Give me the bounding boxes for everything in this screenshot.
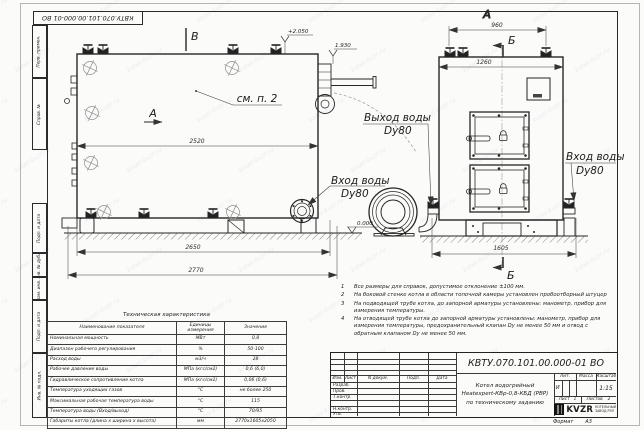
inlet-right-text: Вход воды: [566, 151, 625, 163]
padlock-icon: [500, 135, 508, 141]
elevation-2050: +2.050: [281, 29, 313, 54]
valve-icon: [428, 199, 438, 208]
dim-2520-text: 2520: [189, 138, 204, 145]
outlet-text: Выход воды: [364, 112, 431, 124]
elev-1930-text: 1.930: [335, 43, 351, 49]
tb-scale-value: 1:15: [596, 380, 616, 396]
section-b-bottom-marker: Б: [493, 257, 515, 282]
side-view-body: [77, 54, 318, 218]
table-row: Номинальная мощностьМВт0,8: [48, 335, 287, 345]
table-row: Рабочее давление водыМПа (кгс/см2)0,6 (6…: [48, 366, 287, 376]
dim-960-text: 960: [491, 22, 503, 29]
valve-icon: [541, 48, 551, 57]
title-block: Изм. Лист N докум. Подп. Дата Разраб. Пр…: [330, 352, 618, 418]
valve-icon: [86, 209, 96, 218]
section-b-bottom-text: Б: [507, 269, 515, 282]
lower-door: [467, 165, 530, 212]
valve-icon: [98, 45, 108, 54]
section-b-top-text: Б: [508, 34, 516, 47]
target-mark-icon: [221, 57, 244, 80]
tb-doc-number: КВТУ.070.101.00.000-01 ВО: [456, 353, 616, 373]
kvzr-logo-icon: [554, 404, 564, 415]
padlock-icon: [500, 188, 508, 194]
left-connection: [419, 208, 439, 232]
elevation-1930: 1.930: [329, 43, 357, 64]
tb-lit-value: И: [554, 380, 562, 396]
tech-col-value: Значение: [225, 322, 287, 335]
table-row: Расход водым3/ч28: [48, 355, 287, 365]
note-item: 1Все размеры для справок, допустимое отк…: [341, 284, 617, 291]
kvzr-logo-subtitle: КОТЕЛЬНЫЙ ЗАВОД РЭП: [595, 406, 616, 413]
side-view: 2520 2650 2770 +2.050: [62, 28, 416, 279]
upper-door: [467, 112, 530, 159]
valve-icon: [83, 45, 93, 54]
company-logo: KVZR КОТЕЛЬНЫЙ ЗАВОД РЭП: [554, 403, 616, 416]
view-a-text: А: [148, 107, 157, 120]
view-a-marker: А: [144, 107, 162, 122]
tb-scale-label: Масштаб: [596, 373, 616, 380]
elev-zero-text: 0.000: [357, 221, 373, 227]
valve-icon: [271, 45, 281, 54]
dimension-1260: 1260: [439, 59, 563, 67]
water-inlet-right-label: Вход воды Dy80: [565, 151, 625, 201]
dim-1605-text: 1605: [493, 245, 508, 252]
padlock-icon: [501, 131, 507, 135]
side-view-flue: [316, 64, 417, 152]
front-view: 1260 960 1605 А Б: [347, 8, 625, 282]
ground-left: [64, 233, 362, 240]
valve-icon: [458, 48, 468, 57]
side-view-left-fittings: [62, 76, 77, 228]
side-view-supports: [80, 218, 316, 233]
see-item-text: см. п. 2: [237, 93, 278, 105]
tech-table: Наименование показателя Единицы измерени…: [47, 321, 287, 429]
notes-list: 1Все размеры для справок, допустимое отк…: [341, 284, 617, 339]
table-row: Температура воды (Вход/выход)°С70/95: [48, 407, 287, 417]
target-mark-icon: [80, 152, 103, 175]
valve-icon: [445, 48, 455, 57]
valve-icon: [208, 209, 218, 218]
water-outlet-label: Выход воды Dy80: [363, 112, 431, 205]
table-row: Диапазон рабочего регулирования%50-100: [48, 345, 287, 355]
ground-right: [420, 236, 588, 243]
tech-col-name: Наименование показателя: [48, 322, 177, 335]
section-v-marker: В: [186, 28, 199, 51]
note-item: 3На подводящей трубе котла, до запорной …: [341, 301, 617, 316]
inlet-right-dn-text: Dy80: [576, 165, 604, 177]
right-connection: [563, 208, 575, 236]
dim-2650-text: 2650: [185, 244, 200, 251]
elev-2050-text: +2.050: [288, 29, 309, 35]
flue-fan: [369, 188, 417, 236]
control-panel: [527, 78, 550, 100]
table-row: Температура уходящих газов°Сне более 250: [48, 386, 287, 396]
front-view-base: [466, 220, 557, 236]
front-view-body: [439, 57, 563, 220]
see-item-note: см. п. 2: [195, 90, 282, 105]
tb-podp: Подп.: [399, 375, 428, 382]
tech-table-title: Техническая характеристика: [47, 312, 286, 318]
tb-sheets: Листов2: [581, 396, 616, 403]
kvzr-logo-word: KVZR: [566, 405, 593, 415]
door-handle: [469, 136, 490, 141]
format-strip: Формат А3: [553, 419, 623, 425]
drawing-sheet: kotel-kvzr.rukotel-kvzr.rukotel-kvzr.ruk…: [0, 0, 644, 430]
padlock-icon: [501, 184, 507, 188]
tb-sheet: Лист1: [554, 396, 581, 403]
tb-lit-label: Лит.: [554, 373, 576, 380]
outlet-dn-text: Dy80: [384, 125, 412, 137]
valve-icon: [139, 209, 149, 218]
target-mark-icon: [81, 102, 104, 125]
note-item: 4На отводящей трубе котла до запорной ар…: [341, 316, 617, 338]
table-row: Гидравлическое сопротивление котлаМПа (к…: [48, 376, 287, 386]
table-row: Максимальная рабочая температура воды°С1…: [48, 397, 287, 407]
tb-ndokum: N докум.: [357, 375, 399, 382]
section-a-text: А: [482, 8, 491, 21]
inlet-left-dn-text: Dy80: [341, 188, 369, 200]
tech-table-header-row: Наименование показателя Единицы измерени…: [48, 322, 287, 335]
door-handle: [469, 189, 490, 194]
inlet-left-text: Вход воды: [331, 175, 390, 187]
dimension-960: 960: [449, 22, 546, 46]
tb-data: Дата: [428, 375, 456, 382]
tb-product-name: Котел водогрейный Heatexpert-КВр-0,8-КБД…: [456, 373, 554, 416]
valve-icon: [564, 199, 574, 208]
dimension-2520: 2520: [77, 138, 318, 146]
table-row: Габариты котла (длина х ширина х высота)…: [48, 418, 287, 428]
valve-icon: [228, 45, 238, 54]
tech-col-units: Единицы измерения: [177, 322, 225, 335]
target-mark-icon: [79, 57, 102, 80]
section-b-top-marker: Б: [493, 34, 516, 57]
tb-role-utv: Утв.: [331, 412, 359, 416]
section-v-text: В: [191, 30, 199, 43]
dim-1260-text: 1260: [476, 59, 491, 66]
tb-izm: Изм.: [331, 375, 344, 382]
tb-mass-label: Масса: [576, 373, 596, 380]
dim-2770-text: 2770: [188, 267, 203, 274]
tb-list: Лист: [344, 375, 357, 382]
elevation-zero: 0.000: [347, 221, 378, 233]
water-inlet-left-label: Вход воды Dy80: [308, 175, 390, 205]
note-item: 2На боковой стенке котла в области топоч…: [341, 292, 617, 299]
